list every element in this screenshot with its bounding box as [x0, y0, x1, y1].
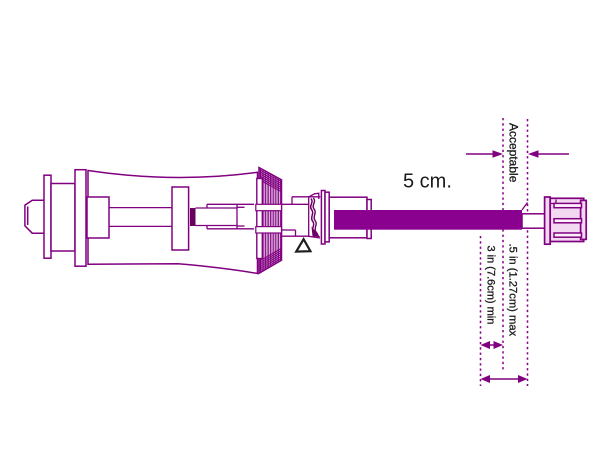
- svg-text:.5 in (1.27cm) max: .5 in (1.27cm) max: [507, 244, 519, 337]
- svg-text:Acceptable: Acceptable: [507, 123, 521, 183]
- svg-text:5 cm.: 5 cm.: [403, 171, 452, 193]
- svg-text:3 in (7.6cm) min: 3 in (7.6cm) min: [485, 246, 497, 325]
